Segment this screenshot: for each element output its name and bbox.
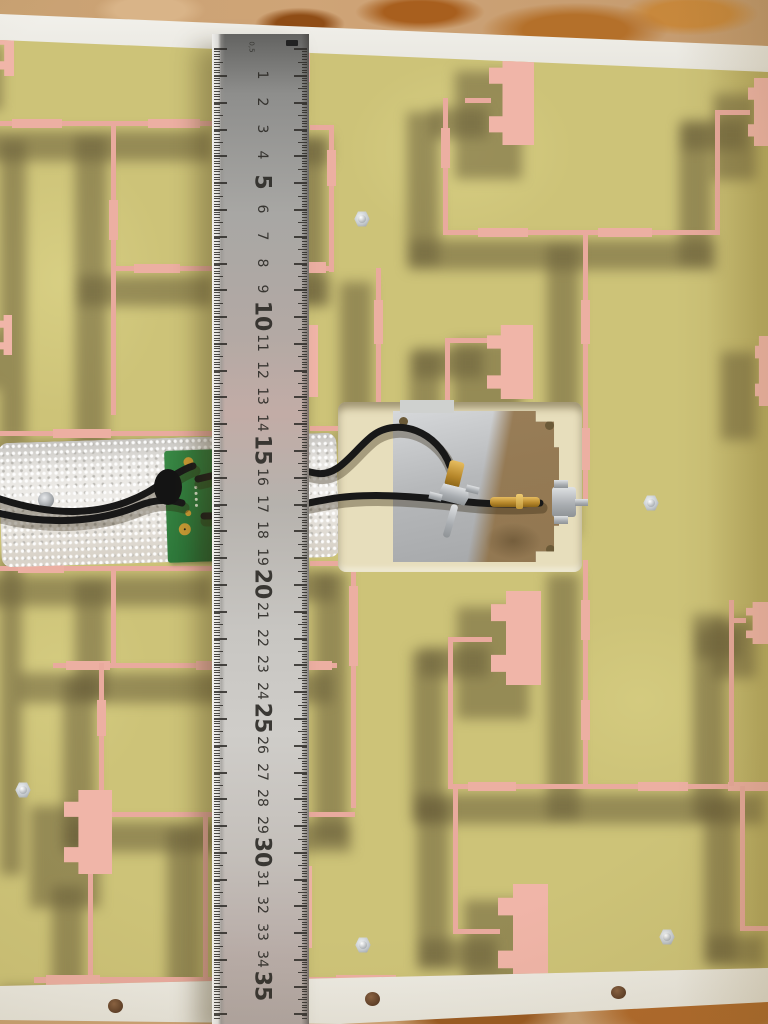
ruler-tick: [214, 166, 220, 167]
ruler-tick: [302, 225, 308, 226]
sma-body: [552, 487, 576, 517]
ruler-tick: [214, 407, 220, 408]
ruler-tick: [302, 214, 308, 215]
ruler-tick: [302, 107, 308, 108]
ruler-tick: [302, 426, 308, 427]
ruler-number: 23: [254, 655, 270, 673]
ruler-tick: [214, 613, 220, 614]
ruler-tick: [214, 635, 220, 636]
ruler-tick: [214, 455, 220, 456]
ruler-tick: [302, 630, 308, 631]
ruler-number: 8: [254, 258, 270, 267]
ruler-tick: [214, 179, 220, 180]
ruler-tick: [302, 308, 308, 309]
ruler-tick: [302, 750, 308, 751]
ruler-tick: [214, 892, 223, 893]
cable-strain-relief: [154, 469, 182, 505]
ruler-tick: [214, 868, 220, 869]
ruler-tick: [302, 573, 308, 574]
ruler-tick: [214, 525, 220, 526]
ruler-tick: [214, 699, 220, 700]
ruler-number: 11: [254, 334, 270, 352]
ruler-tick: [302, 480, 308, 481]
ruler-tick: [294, 905, 307, 907]
ruler-tick: [214, 938, 220, 939]
ruler-tick: [302, 648, 308, 649]
ruler-tick: [214, 595, 220, 596]
ruler-tick: [302, 788, 308, 789]
ruler-tick: [214, 646, 220, 647]
ruler-tick: [302, 59, 308, 60]
ruler-tick: [214, 1007, 220, 1008]
ruler-tick: [302, 96, 308, 97]
ruler-tick: [302, 268, 308, 269]
ruler-tick: [302, 313, 308, 314]
ruler-tick: [302, 228, 308, 229]
ruler-tick: [214, 654, 220, 655]
ruler-tick: [214, 453, 220, 454]
ruler-tick: [214, 865, 223, 866]
ruler-tick: [302, 560, 308, 561]
ruler-tick: [214, 597, 223, 598]
ruler-tick: [214, 873, 220, 874]
ruler-tick: [302, 204, 308, 205]
ruler-tick: [302, 702, 308, 703]
ruler-tick: [302, 399, 308, 400]
ruler-tick: [302, 112, 308, 113]
ruler-tick: [302, 980, 308, 981]
ruler-tick: [214, 429, 220, 430]
ruler-tick: [214, 956, 220, 957]
ruler-tick: [214, 112, 220, 113]
ruler-number: 30: [250, 837, 275, 868]
ruler-tick: [294, 1013, 307, 1015]
ruler-tick: [214, 980, 220, 981]
ruler-tick: [214, 458, 220, 459]
ruler-tick: [302, 305, 308, 306]
ruler-tick: [302, 300, 308, 301]
ruler-tick: [214, 911, 220, 912]
ruler-tick: [294, 236, 307, 238]
ruler-tick: [298, 678, 307, 679]
ruler-tick: [302, 541, 308, 542]
ruler-tick: [214, 305, 220, 306]
ruler-tick: [302, 78, 308, 79]
ruler-tick: [214, 356, 223, 357]
ruler-tick: [302, 868, 308, 869]
ruler-tick: [214, 780, 220, 781]
ruler-tick: [214, 632, 220, 633]
ruler-tick: [302, 284, 308, 285]
ruler-tick: [302, 755, 308, 756]
ruler-tick: [302, 455, 308, 456]
ruler-tick: [214, 327, 220, 328]
ruler-tick: [214, 126, 220, 127]
ruler-tick: [214, 271, 220, 272]
ruler-tick: [214, 587, 220, 588]
ruler-tick: [214, 62, 223, 63]
ruler-tick: [302, 659, 308, 660]
ruler-tick: [214, 589, 220, 590]
ruler-tick: [214, 919, 223, 920]
ruler-tick: [302, 319, 308, 320]
ruler-tick: [302, 967, 308, 968]
ruler-tick: [214, 394, 220, 395]
ruler-tick: [214, 297, 220, 298]
ruler-tick: [214, 418, 220, 419]
ruler-tick: [214, 142, 223, 143]
ruler-tick: [214, 528, 220, 529]
ruler-tick: [214, 881, 220, 882]
ruler-tick: [302, 780, 308, 781]
ruler-tick: [214, 153, 220, 154]
ruler-tick: [302, 568, 308, 569]
ruler-tick: [302, 948, 308, 949]
ruler-tick: [302, 445, 308, 446]
ruler-tick: [302, 723, 308, 724]
ruler-tick: [302, 217, 308, 218]
ruler-tick: [214, 137, 220, 138]
ruler-tick: [302, 989, 308, 990]
ruler-tick: [302, 161, 308, 162]
ruler-tick: [214, 150, 220, 151]
ruler-tick: [298, 329, 307, 330]
ruler-tick: [302, 346, 308, 347]
ruler-tick: [302, 871, 308, 872]
ruler-tick: [302, 429, 308, 430]
ruler-tick: [302, 394, 308, 395]
ruler-tick: [302, 635, 308, 636]
ruler-tick: [214, 83, 220, 84]
ruler-tick: [214, 959, 227, 961]
ruler-stamp-mark: [286, 40, 298, 46]
ruler-tick: [302, 335, 308, 336]
ruler-tick: [214, 431, 220, 432]
ruler-unit-label: 0,5: [248, 41, 256, 52]
ruler-tick: [302, 697, 308, 698]
ruler-tick: [214, 603, 220, 604]
ruler-tick: [302, 956, 308, 957]
ruler-tick: [214, 860, 220, 861]
ruler-tick: [302, 506, 308, 507]
ruler-tick: [214, 801, 220, 802]
ruler-tick: [214, 190, 220, 191]
ruler-tick: [302, 876, 308, 877]
ruler-tick: [214, 442, 220, 443]
ruler-tick: [302, 622, 308, 623]
ruler-tick: [214, 683, 220, 684]
ruler-tick: [302, 64, 308, 65]
ruler-tick: [214, 983, 220, 984]
ruler-tick: [302, 193, 308, 194]
ruler-number: 4: [254, 151, 270, 160]
ruler-tick: [302, 699, 308, 700]
ruler-tick: [294, 102, 307, 104]
ruler-tick: [294, 477, 307, 479]
ruler-tick: [214, 1015, 220, 1016]
ruler-tick: [302, 230, 308, 231]
ruler-tick: [302, 279, 308, 280]
ruler-tick: [302, 372, 308, 373]
ruler-tick: [298, 597, 307, 598]
ruler-tick: [214, 788, 220, 789]
ruler-tick: [214, 220, 220, 221]
ruler-number: 25: [250, 703, 275, 734]
ruler-tick: [214, 560, 220, 561]
ruler-tick: [302, 726, 308, 727]
ruler-tick: [302, 260, 308, 261]
ruler-tick: [214, 844, 220, 845]
ruler-tick: [214, 804, 220, 805]
ruler-tick: [214, 139, 220, 140]
ruler-tick: [214, 362, 220, 363]
ruler-number: 19: [254, 548, 270, 566]
ruler-tick: [214, 688, 220, 689]
ruler-tick: [214, 386, 220, 387]
ruler-tick: [214, 723, 220, 724]
ruler-tick: [214, 930, 220, 931]
ruler-tick: [302, 742, 308, 743]
ruler-tick: [214, 761, 220, 762]
ruler-tick: [214, 678, 223, 679]
ruler-tick: [214, 734, 220, 735]
ruler-tick: [214, 662, 220, 663]
ruler-tick: [214, 648, 220, 649]
ruler-number: 12: [254, 361, 270, 379]
ruler-tick: [214, 80, 220, 81]
ruler-tick: [298, 356, 307, 357]
ruler-tick: [214, 222, 223, 223]
ruler-tick: [302, 332, 308, 333]
ruler-tick: [214, 571, 223, 572]
ruler-tick: [298, 383, 307, 384]
ruler-tick: [302, 131, 308, 132]
ruler-tick: [302, 405, 308, 406]
ruler-tick: [302, 206, 308, 207]
ruler-tick: [302, 150, 308, 151]
ruler-tick: [214, 477, 227, 479]
ruler-tick: [298, 919, 307, 920]
ruler-tick: [214, 1005, 220, 1006]
ruler-tick: [214, 755, 220, 756]
ruler-tick: [214, 627, 220, 628]
ruler-tick: [214, 763, 220, 764]
ruler-tick: [302, 975, 308, 976]
ruler-tick: [302, 847, 308, 848]
ruler-tick: [214, 997, 220, 998]
ruler-tick: [214, 254, 220, 255]
ruler-tick: [302, 579, 308, 580]
ruler-tick: [214, 742, 220, 743]
ruler-tick: [302, 686, 308, 687]
ruler-tick: [302, 522, 308, 523]
ruler-tick: [302, 603, 308, 604]
ruler-tick: [214, 686, 220, 687]
ruler-tick: [302, 903, 308, 904]
ruler-tick: [302, 139, 308, 140]
ruler-tick: [302, 273, 308, 274]
ruler-tick: [214, 214, 220, 215]
ruler-tick: [214, 163, 220, 164]
ruler-tick: [302, 587, 308, 588]
ruler-tick: [214, 498, 220, 499]
ruler-tick: [214, 970, 220, 971]
ruler-tick: [214, 895, 220, 896]
ruler-tick: [214, 423, 227, 425]
ruler-tick: [214, 702, 220, 703]
ruler-tick: [214, 897, 220, 898]
ruler-tick: [302, 281, 308, 282]
ruler-tick: [214, 922, 220, 923]
ruler-tick: [302, 327, 308, 328]
ruler-tick: [302, 287, 308, 288]
ruler-tick: [214, 667, 220, 668]
ruler-tick: [214, 715, 220, 716]
ruler-tick: [214, 463, 223, 464]
ruler-tick: [302, 110, 308, 111]
ruler-tick: [302, 118, 308, 119]
ruler-tick: [214, 672, 220, 673]
ruler-tick: [302, 121, 308, 122]
ruler-tick: [302, 860, 308, 861]
ruler-tick: [214, 204, 220, 205]
ruler-tick: [302, 589, 308, 590]
ruler-tick: [302, 900, 308, 901]
ruler-tick: [214, 198, 220, 199]
ruler-tick: [214, 533, 220, 534]
ruler-tick: [214, 319, 220, 320]
ruler-tick: [214, 413, 220, 414]
ruler-tick: [214, 675, 220, 676]
ruler-tick: [214, 839, 223, 840]
ruler-tick: [302, 814, 308, 815]
photo-scene: 0,5 123456789101112131415161718192021222…: [0, 0, 768, 1024]
ruler-tick: [214, 1010, 220, 1011]
ruler-tick: [302, 563, 308, 564]
ruler-number: 2: [254, 97, 270, 106]
ruler-tick: [302, 662, 308, 663]
ruler-tick: [214, 496, 220, 497]
ruler-tick: [302, 501, 308, 502]
ruler-tick: [302, 608, 308, 609]
ruler-tick: [214, 469, 220, 470]
ruler-tick: [214, 836, 220, 837]
ruler-tick: [302, 817, 308, 818]
ruler-tick: [214, 772, 227, 774]
ruler-tick: [214, 940, 220, 941]
ruler-tick: [302, 528, 308, 529]
ruler-number: 21: [254, 602, 270, 620]
ruler-tick: [294, 772, 307, 774]
ruler-tick: [214, 705, 223, 706]
ruler-tick: [294, 423, 307, 425]
ruler-tick: [214, 249, 223, 250]
ruler-tick: [302, 619, 308, 620]
ruler-tick: [302, 321, 308, 322]
ruler-tick: [302, 694, 308, 695]
ruler-tick: [214, 118, 220, 119]
ruler-tick: [302, 809, 308, 810]
ruler-tick: [214, 900, 220, 901]
ruler-tick: [302, 271, 308, 272]
ruler-tick: [302, 533, 308, 534]
ruler-tick: [302, 86, 308, 87]
ruler-tick: [214, 814, 220, 815]
ruler-tick: [214, 94, 220, 95]
ruler-tick: [302, 520, 308, 521]
ruler-tick: [214, 364, 220, 365]
ruler-tick: [214, 806, 220, 807]
ruler-tick: [294, 530, 307, 532]
ruler-tick: [302, 354, 308, 355]
ruler-tick: [302, 710, 308, 711]
ruler-tick: [214, 405, 220, 406]
ruler-tick: [302, 761, 308, 762]
ruler-tick: [214, 889, 220, 890]
ruler-tick: [214, 348, 220, 349]
ruler-tick: [302, 887, 308, 888]
ruler-tick: [298, 812, 307, 813]
ruler-tick: [302, 512, 308, 513]
ruler-tick: [214, 88, 223, 89]
ruler-tick: [214, 659, 220, 660]
ruler-tick: [302, 292, 308, 293]
ruler-tick: [214, 461, 220, 462]
ruler-tick: [302, 734, 308, 735]
ruler-tick: [302, 158, 308, 159]
ruler-tick: [214, 482, 220, 483]
ruler-tick: [214, 935, 220, 936]
ruler-tick: [302, 94, 308, 95]
ruler-tick: [298, 946, 307, 947]
ruler-tick: [214, 177, 220, 178]
ruler-tick: [214, 107, 220, 108]
ruler-number: 14: [254, 414, 270, 432]
ruler-tick: [214, 225, 220, 226]
ruler-tick: [302, 525, 308, 526]
ruler-tick: [214, 501, 220, 502]
ruler-tick: [214, 541, 220, 542]
ruler-tick: [214, 640, 220, 641]
ruler-tick: [302, 418, 308, 419]
ruler-tick: [302, 126, 308, 127]
ruler-tick: [302, 627, 308, 628]
ruler-tick: [302, 914, 308, 915]
ruler-tick: [302, 415, 308, 416]
ruler-tick: [302, 367, 308, 368]
ruler-tick: [214, 884, 220, 885]
ruler-tick: [214, 747, 220, 748]
ruler-tick: [302, 707, 308, 708]
ruler-tick: [302, 362, 308, 363]
ruler-tick: [214, 820, 220, 821]
ruler-tick: [214, 563, 220, 564]
ruler-tick: [302, 413, 308, 414]
ruler-tick: [214, 96, 220, 97]
ruler-tick: [214, 830, 220, 831]
ruler-tick: [302, 493, 308, 494]
ruler-tick: [302, 145, 308, 146]
ruler-tick: [214, 651, 223, 652]
ruler-tick: [214, 64, 220, 65]
ruler-number: 17: [254, 495, 270, 513]
ruler-tick: [302, 793, 308, 794]
ruler-tick: [302, 442, 308, 443]
ruler-tick: [214, 421, 220, 422]
ruler-tick: [214, 546, 220, 547]
ruler-tick: [214, 490, 223, 491]
ruler-tick: [214, 512, 220, 513]
